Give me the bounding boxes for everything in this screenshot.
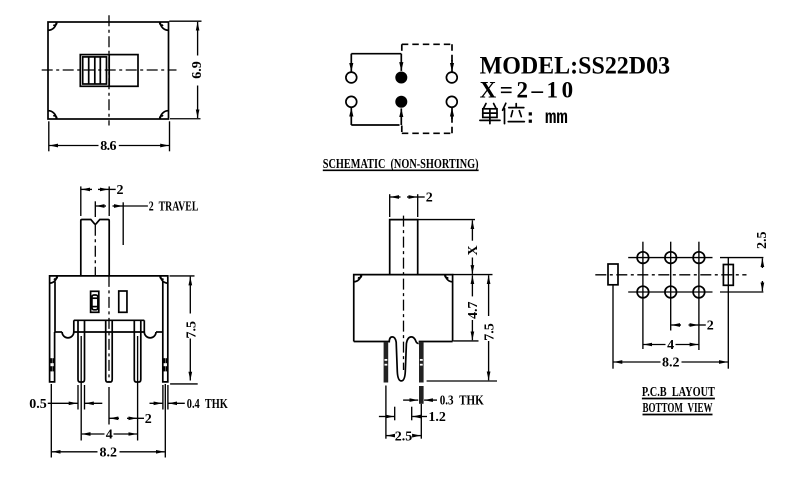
- svg-text:2: 2: [707, 319, 714, 334]
- svg-text:mm: mm: [545, 107, 568, 129]
- svg-text:0.5: 0.5: [29, 397, 47, 412]
- svg-text:MODEL:SS22D03: MODEL:SS22D03: [480, 53, 670, 80]
- svg-text:2: 2: [145, 412, 152, 427]
- svg-text:8.2: 8.2: [662, 356, 680, 371]
- svg-text:7.5: 7.5: [184, 321, 199, 339]
- svg-text:0.3 THK: 0.3 THK: [440, 394, 484, 409]
- svg-text:8.6: 8.6: [100, 139, 116, 154]
- svg-text:4.7: 4.7: [466, 302, 481, 320]
- svg-text:2: 2: [117, 183, 124, 198]
- svg-text:2.5: 2.5: [395, 429, 413, 444]
- svg-text:8.2: 8.2: [100, 445, 118, 460]
- svg-text:0.4 THK: 0.4 THK: [187, 397, 228, 412]
- svg-text:2 TRAVEL: 2 TRAVEL: [149, 200, 199, 215]
- svg-text:4: 4: [667, 338, 674, 353]
- svg-text:2.5: 2.5: [755, 232, 770, 250]
- svg-text:7.5: 7.5: [482, 323, 497, 341]
- svg-text:2: 2: [426, 191, 433, 206]
- svg-text:6.9: 6.9: [190, 61, 205, 79]
- svg-text:X: X: [466, 245, 481, 255]
- svg-text:4: 4: [106, 428, 113, 443]
- svg-text:1.2: 1.2: [428, 410, 446, 425]
